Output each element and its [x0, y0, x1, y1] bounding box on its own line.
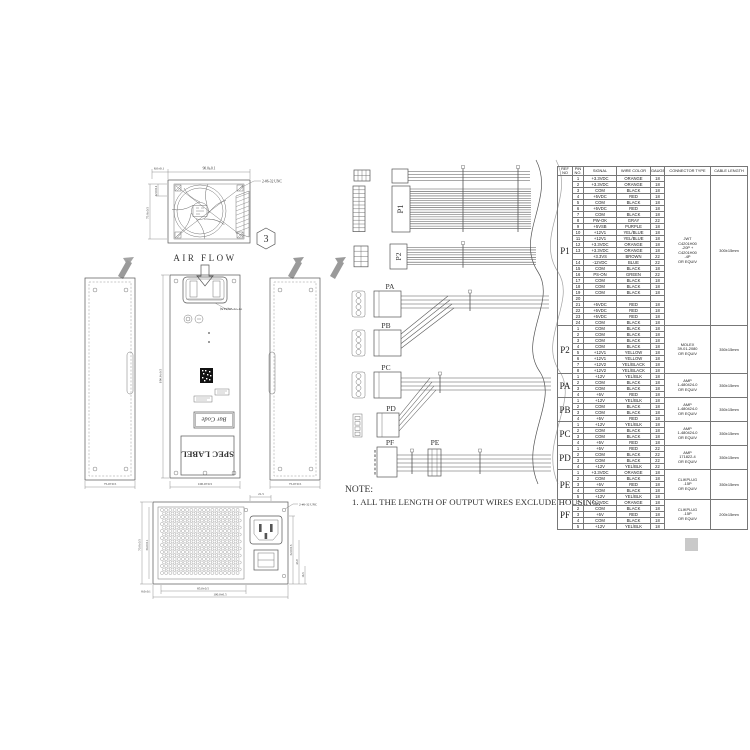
pb-label: PB — [381, 321, 390, 330]
connector-cell: JWTC4201H00-20P +C4201H00-4POR EQUIV — [665, 176, 711, 326]
pd-housing — [377, 413, 399, 437]
fan-height-dim: 75.0±0.5 — [146, 207, 150, 219]
rear-screw-note: 2-#6-32 UNC — [299, 503, 318, 507]
ref-cell: P1 — [558, 176, 573, 326]
connector-cell: AMP1-480424-0OR EQUIV — [665, 398, 711, 422]
pd-label: PD — [386, 404, 396, 413]
ref-cell: PB — [558, 398, 573, 422]
length-cell: 350±15mm — [711, 470, 748, 500]
note-label: NOTE: — [345, 485, 373, 495]
rear-left-outer-dim: 70.0±0.5 — [138, 539, 142, 551]
fan-inner-dim: 12.0±0.1 — [154, 185, 158, 196]
rear-left-inner-dim: 56.0±0.1 — [145, 539, 149, 550]
table-header: REF NO — [558, 167, 573, 176]
pin-cell: 5 — [573, 524, 584, 530]
break-line-left — [530, 160, 545, 484]
pc-label: PC — [381, 363, 390, 372]
rear-right-mid-dim: 43.9 — [295, 559, 299, 565]
fan-offset-dim: 8.0±0.1 — [154, 167, 165, 171]
rear-bottom-outer-dim: 100.0±0.5 — [213, 592, 227, 596]
pf-label: PF — [386, 438, 394, 447]
ref-cell: PE — [558, 470, 573, 500]
fan-view: 8.0±0.1 90.0±0.1 75.0±0.5 12.0±0.1 2-#6-… — [146, 167, 283, 250]
signal-cell: +12V — [584, 524, 617, 530]
bar-code-label: Bar Code — [201, 416, 226, 423]
spec-label: SPEC LABEL — [181, 450, 234, 460]
fan-screw-note: 2-#6-32 UNC — [262, 180, 282, 184]
color-cell: YEL/BLK — [617, 524, 651, 530]
center-view-width-dim: 100.0±0.5 — [198, 482, 212, 486]
side-view-right: 75.0±0.5 — [269, 278, 320, 489]
ref-cell: PF — [558, 500, 573, 530]
length-cell: 350±15mm — [711, 326, 748, 374]
watermark-square — [685, 538, 698, 551]
length-cell: 200±15mm — [711, 500, 748, 530]
ref-cell: P2 — [558, 326, 573, 374]
p1-4p-housing — [392, 169, 408, 183]
length-cell: 350±15mm — [711, 422, 748, 446]
rear-view: 21.5 2-#6-32 UNC 70.0±0.5 56.0±0.1 8.0±0… — [138, 492, 318, 599]
air-flow-label: AIR FLOW — [173, 253, 236, 263]
gauge-cell: 18 — [651, 524, 665, 530]
connector-cell: AMP171822-4OR EQUIV — [665, 446, 711, 470]
pf-housing — [377, 447, 397, 477]
rear-bottom-small-dim: 8.0±0.1 — [141, 590, 151, 594]
table-header: CABLE LENGTH — [711, 167, 748, 176]
rear-top-dim: 21.5 — [258, 492, 264, 496]
length-cell: 350±15mm — [711, 374, 748, 398]
table-header: CONNECTOR TYPE — [665, 167, 711, 176]
top-view-center: 70*70*25(FAN) Bar Code SPEC LABEL 100.0±… — [159, 275, 243, 489]
rear-right-lower-dim: 16.5 — [301, 572, 305, 578]
table-header: GAUGE — [651, 167, 665, 176]
wire-table: REF NOPIN NO.SIGNALWIRE COLORGAUGECONNEC… — [557, 166, 748, 530]
connector-cell: MOLEX39-01-2080OR EQUIV — [665, 326, 711, 374]
balloon-3: 3 — [264, 234, 269, 245]
right-view-width-dim: 75.0±0.5 — [289, 482, 302, 486]
table-header: WIRE COLOR — [617, 167, 651, 176]
connector-cell: AMP1-480424-0OR EQUIV — [665, 422, 711, 446]
table-header: PIN NO. — [573, 167, 584, 176]
left-view-width-dim: 75.0±0.5 — [104, 482, 117, 486]
connector-cell: AMP1-480424-0OR EQUIV — [665, 374, 711, 398]
pa-label: PA — [386, 282, 395, 291]
side-view-left: 75.0±0.5 — [85, 278, 135, 489]
ref-cell: PD — [558, 446, 573, 470]
rear-bottom-mid-dim: 85.0±0.5 — [197, 586, 209, 590]
pc-housing — [374, 372, 401, 398]
ref-cell: PA — [558, 374, 573, 398]
rear-right-upper-dim: 52.0±0.5 — [289, 544, 293, 555]
fan-width-dim: 90.0±0.1 — [203, 167, 216, 171]
connector-cell: CLIKPLUG-15POR EQUIV — [665, 500, 711, 530]
pe-housing — [428, 449, 441, 476]
connector-cell: CLIKPLUG-15POR EQUIV — [665, 470, 711, 500]
p1-label: P1 — [395, 205, 405, 214]
length-cell: 350±15mm — [711, 398, 748, 422]
length-cell: 350±15mm — [711, 446, 748, 470]
psu-mechanical-drawing: 8.0±0.1 90.0±0.1 75.0±0.5 12.0±0.1 2-#6-… — [0, 0, 750, 750]
p2-label: P2 — [394, 252, 403, 260]
pe-label: PE — [431, 438, 440, 447]
table-header: SIGNAL — [584, 167, 617, 176]
length-cell: 300±15mm — [711, 176, 748, 326]
center-view-length-dim: 190.0±0.5 — [159, 369, 163, 383]
pb-housing — [374, 330, 401, 356]
pa-housing — [374, 291, 401, 317]
fan-callout-label: 70*70*25(FAN) — [220, 307, 242, 311]
airflow-down-arrow — [197, 265, 213, 286]
ref-cell: PC — [558, 422, 573, 446]
wiring-diagram: P1 P2 PA PB PC PD PF PE — [352, 160, 565, 484]
table-header-row: REF NOPIN NO.SIGNALWIRE COLORGAUGECONNEC… — [558, 167, 748, 176]
wire-spec-table-container: REF NOPIN NO.SIGNALWIRE COLORGAUGECONNEC… — [557, 166, 747, 482]
